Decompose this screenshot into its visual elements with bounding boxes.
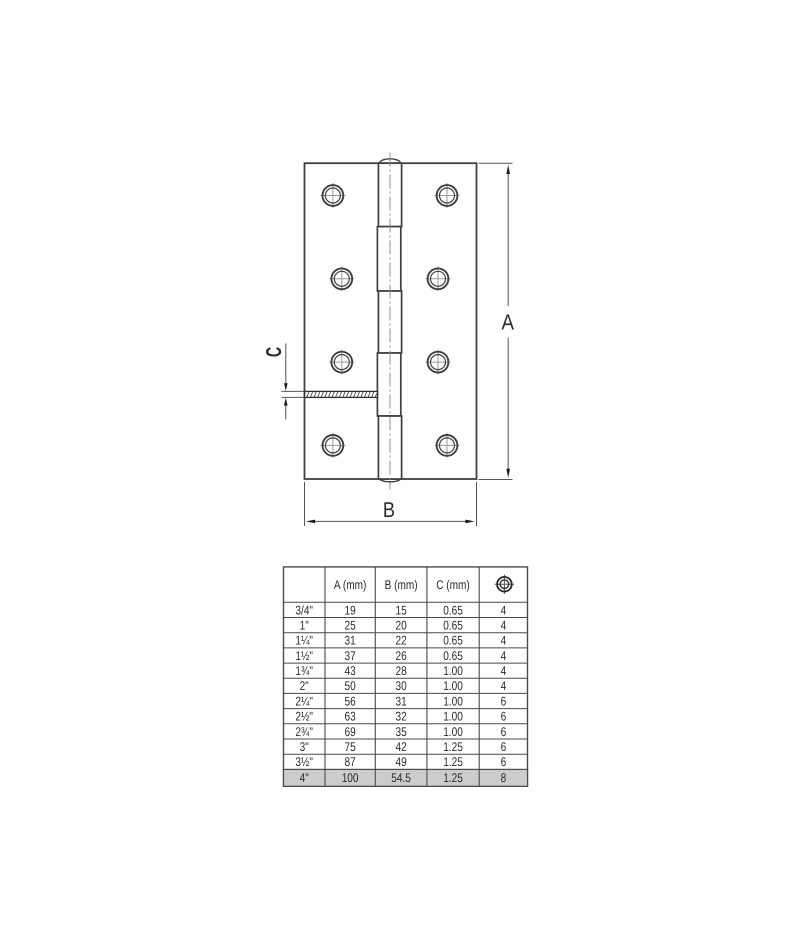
svg-text:C: C (262, 347, 286, 357)
svg-text:6: 6 (501, 694, 507, 708)
svg-text:15: 15 (395, 603, 406, 617)
svg-text:25: 25 (344, 619, 355, 633)
svg-text:0.65: 0.65 (443, 649, 463, 663)
svg-text:54.5: 54.5 (391, 771, 411, 785)
svg-text:C (mm): C (mm) (436, 578, 470, 592)
svg-text:A: A (502, 310, 515, 335)
svg-text:4: 4 (501, 619, 507, 633)
svg-text:1½": 1½" (295, 649, 313, 663)
svg-text:2½": 2½" (295, 710, 313, 724)
svg-text:1": 1" (300, 619, 309, 633)
svg-text:50: 50 (344, 679, 355, 693)
svg-text:1.00: 1.00 (443, 710, 463, 724)
svg-text:6: 6 (501, 755, 507, 769)
svg-text:3": 3" (300, 740, 309, 754)
svg-text:4": 4" (300, 771, 309, 785)
svg-text:75: 75 (344, 740, 355, 754)
svg-text:1.25: 1.25 (443, 755, 463, 769)
svg-text:3½": 3½" (295, 755, 313, 769)
svg-text:A (mm): A (mm) (334, 578, 366, 592)
svg-text:26: 26 (395, 649, 406, 663)
svg-text:1.00: 1.00 (443, 679, 463, 693)
svg-text:0.65: 0.65 (443, 603, 463, 617)
svg-text:1.00: 1.00 (443, 664, 463, 678)
svg-text:1.25: 1.25 (443, 740, 463, 754)
svg-text:1.00: 1.00 (443, 725, 463, 739)
svg-text:20: 20 (395, 619, 406, 633)
svg-text:4: 4 (501, 664, 507, 678)
svg-text:1¾": 1¾" (295, 664, 313, 678)
svg-text:6: 6 (501, 740, 507, 754)
svg-text:35: 35 (395, 725, 406, 739)
svg-text:63: 63 (344, 710, 355, 724)
svg-text:3/4": 3/4" (295, 603, 313, 617)
svg-text:0.65: 0.65 (443, 619, 463, 633)
svg-text:42: 42 (395, 740, 406, 754)
svg-text:49: 49 (395, 755, 406, 769)
svg-text:6: 6 (501, 710, 507, 724)
svg-text:37: 37 (344, 649, 355, 663)
svg-text:69: 69 (344, 725, 355, 739)
svg-text:1¼": 1¼" (295, 634, 313, 648)
svg-text:8: 8 (501, 771, 507, 785)
svg-text:31: 31 (344, 634, 355, 648)
svg-text:43: 43 (344, 664, 355, 678)
svg-text:87: 87 (344, 755, 355, 769)
svg-text:2": 2" (300, 679, 309, 693)
svg-text:6: 6 (501, 725, 507, 739)
svg-text:19: 19 (344, 603, 355, 617)
svg-text:1.25: 1.25 (443, 771, 463, 785)
svg-text:2¾": 2¾" (295, 725, 313, 739)
svg-text:28: 28 (395, 664, 406, 678)
svg-text:30: 30 (395, 679, 406, 693)
svg-text:4: 4 (501, 649, 507, 663)
svg-text:56: 56 (344, 694, 355, 708)
svg-text:4: 4 (501, 679, 507, 693)
svg-text:31: 31 (395, 694, 406, 708)
svg-text:0.65: 0.65 (443, 634, 463, 648)
svg-text:4: 4 (501, 603, 507, 617)
svg-text:1.00: 1.00 (443, 694, 463, 708)
svg-text:B (mm): B (mm) (385, 578, 418, 592)
svg-text:22: 22 (395, 634, 406, 648)
svg-text:B: B (383, 498, 395, 522)
svg-text:32: 32 (395, 710, 406, 724)
svg-text:4: 4 (501, 634, 507, 648)
svg-text:2¼": 2¼" (295, 694, 313, 708)
svg-text:100: 100 (342, 771, 359, 785)
